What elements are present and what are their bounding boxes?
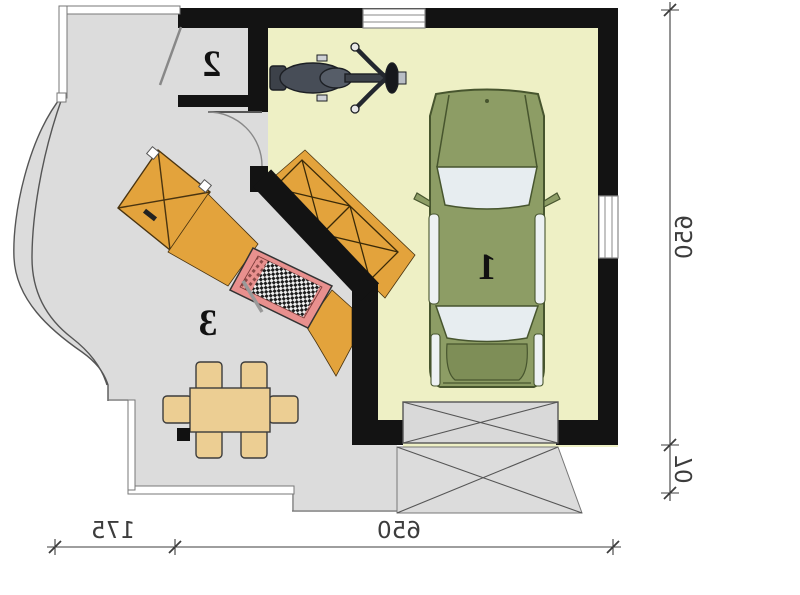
- chair: [241, 362, 267, 391]
- window-wall-bottom: [128, 486, 294, 494]
- window-wall-bottom-left: [128, 400, 135, 490]
- driveway-apron: [397, 447, 582, 513]
- dim-right-70: 70: [672, 454, 698, 483]
- chair: [241, 429, 267, 458]
- dim-bottom-175: 175: [91, 518, 135, 544]
- car-body: [430, 90, 544, 388]
- window-wall-top-left: [59, 6, 180, 14]
- dim-right-650: 650: [672, 215, 698, 259]
- floor-plan-page: 1 2 3 650 70 175 650: [0, 0, 800, 595]
- dining-table: [190, 388, 270, 432]
- window-right: [599, 196, 618, 258]
- dimension-right: 650 70: [661, 2, 698, 501]
- room2-label: 2: [203, 44, 222, 85]
- room1-label: 1: [478, 247, 497, 288]
- floor-plan-drawing: 1 2 3 650 70 175 650: [0, 0, 800, 595]
- car-windshield: [436, 306, 538, 342]
- car-hood: [447, 344, 528, 380]
- window-top: [363, 9, 425, 28]
- dimension-bottom: 175 650: [47, 518, 621, 555]
- car: [414, 90, 560, 388]
- chair: [269, 396, 298, 423]
- floor-marker: [177, 428, 190, 441]
- chair: [196, 362, 222, 391]
- garage-door: [403, 402, 558, 443]
- chair: [196, 429, 222, 458]
- wall-post: [57, 93, 66, 102]
- chair: [163, 396, 192, 423]
- dim-bottom-650: 650: [377, 518, 421, 544]
- room3-label: 3: [199, 303, 218, 344]
- car-rear-window: [437, 167, 537, 209]
- window-wall-left: [59, 6, 67, 98]
